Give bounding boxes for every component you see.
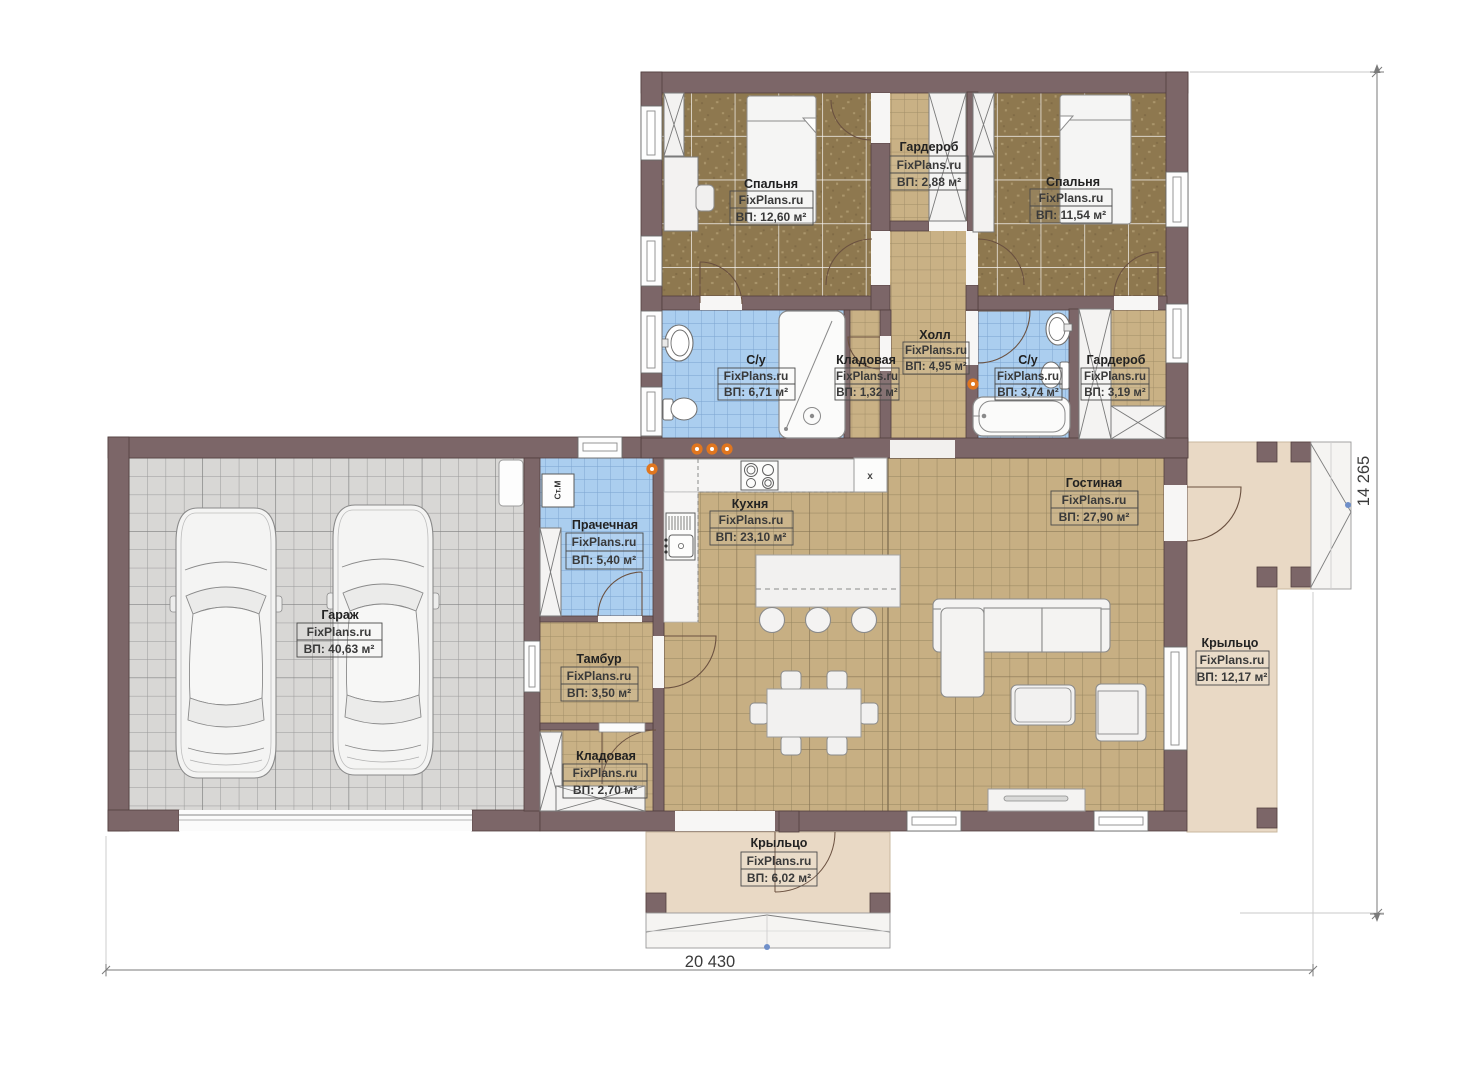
svg-text:FixPlans.ru: FixPlans.ru [573, 766, 638, 780]
svg-text:Крыльцо: Крыльцо [751, 836, 808, 850]
svg-text:С/у: С/у [746, 353, 766, 367]
svg-text:FixPlans.ru: FixPlans.ru [307, 625, 372, 639]
svg-text:FixPlans.ru: FixPlans.ru [1084, 371, 1146, 383]
svg-text:ВП: 23,10 м²: ВП: 23,10 м² [716, 530, 787, 544]
svg-text:FixPlans.ru: FixPlans.ru [836, 371, 898, 383]
svg-text:Кухня: Кухня [732, 497, 769, 511]
svg-text:ВП: 4,95 м²: ВП: 4,95 м² [905, 361, 967, 373]
svg-text:Холл: Холл [919, 328, 950, 342]
svg-text:14 265: 14 265 [1355, 456, 1373, 506]
svg-text:Гардероб: Гардероб [899, 140, 958, 154]
svg-text:Кладовая: Кладовая [836, 353, 896, 367]
svg-text:ВП: 3,74 м²: ВП: 3,74 м² [997, 387, 1059, 399]
svg-text:FixPlans.ru: FixPlans.ru [997, 371, 1059, 383]
svg-text:ВП: 3,50 м²: ВП: 3,50 м² [567, 686, 631, 700]
svg-text:С/у: С/у [1018, 353, 1038, 367]
svg-text:FixPlans.ru: FixPlans.ru [1062, 493, 1127, 507]
svg-text:ВП: 3,19 м²: ВП: 3,19 м² [1084, 387, 1146, 399]
svg-text:Прачечная: Прачечная [572, 518, 638, 532]
svg-text:ВП: 6,71 м²: ВП: 6,71 м² [724, 385, 788, 399]
svg-text:ВП: 2,70 м²: ВП: 2,70 м² [573, 783, 637, 797]
svg-text:ВП: 12,60 м²: ВП: 12,60 м² [736, 210, 807, 224]
svg-text:FixPlans.ru: FixPlans.ru [1200, 653, 1265, 667]
svg-text:Крыльцо: Крыльцо [1202, 636, 1259, 650]
svg-text:ВП: 6,02 м²: ВП: 6,02 м² [747, 871, 811, 885]
svg-text:ВП: 1,32 м²: ВП: 1,32 м² [836, 387, 898, 399]
svg-text:FixPlans.ru: FixPlans.ru [572, 535, 637, 549]
svg-text:Гардероб: Гардероб [1086, 353, 1145, 367]
svg-text:ВП: 11,54 м²: ВП: 11,54 м² [1036, 208, 1106, 222]
svg-text:FixPlans.ru: FixPlans.ru [905, 345, 967, 357]
svg-text:FixPlans.ru: FixPlans.ru [724, 369, 789, 383]
svg-text:x: x [867, 471, 873, 482]
svg-text:FixPlans.ru: FixPlans.ru [897, 158, 962, 172]
svg-text:FixPlans.ru: FixPlans.ru [567, 669, 632, 683]
svg-text:Гостиная: Гостиная [1066, 476, 1123, 490]
svg-text:ВП: 40,63 м²: ВП: 40,63 м² [304, 642, 375, 656]
svg-text:Тамбур: Тамбур [576, 652, 622, 666]
svg-text:ВП: 12,17 м²: ВП: 12,17 м² [1197, 670, 1268, 684]
svg-text:Кладовая: Кладовая [576, 749, 636, 763]
svg-text:Спальня: Спальня [744, 177, 798, 191]
svg-text:FixPlans.ru: FixPlans.ru [1039, 191, 1104, 205]
svg-text:FixPlans.ru: FixPlans.ru [739, 193, 804, 207]
svg-text:Спальня: Спальня [1046, 175, 1100, 189]
svg-text:Гараж: Гараж [321, 608, 358, 622]
svg-text:Ст.М: Ст.М [552, 481, 562, 500]
svg-text:ВП: 5,40 м²: ВП: 5,40 м² [572, 553, 636, 567]
svg-text:ВП: 27,90 м²: ВП: 27,90 м² [1059, 510, 1130, 524]
svg-text:ВП: 2,88 м²: ВП: 2,88 м² [897, 175, 961, 189]
svg-text:FixPlans.ru: FixPlans.ru [747, 854, 812, 868]
svg-text:FixPlans.ru: FixPlans.ru [719, 513, 784, 527]
svg-text:20 430: 20 430 [685, 953, 735, 971]
